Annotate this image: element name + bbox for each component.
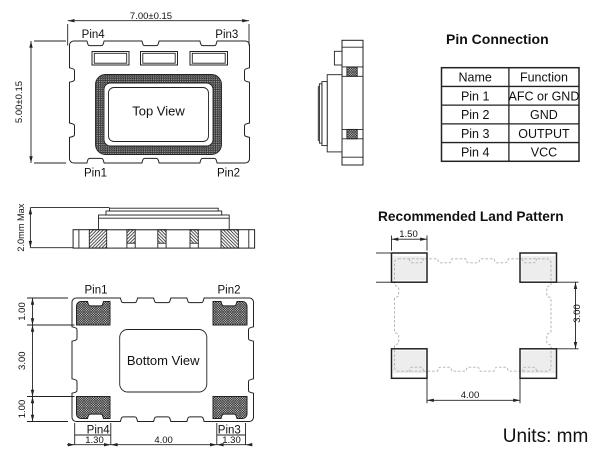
svg-text:Pin1: Pin1 [84, 168, 107, 180]
svg-text:3.00: 3.00 [17, 351, 28, 370]
svg-text:1.00: 1.00 [17, 400, 28, 419]
svg-text:2.0mm Max: 2.0mm Max [16, 203, 26, 251]
svg-text:3.00: 3.00 [572, 304, 583, 323]
svg-text:Pin Connection: Pin Connection [446, 31, 549, 47]
svg-text:Pin2: Pin2 [217, 168, 240, 180]
svg-text:1.50: 1.50 [399, 229, 418, 240]
svg-text:1.30: 1.30 [85, 435, 104, 446]
svg-text:GND: GND [530, 108, 558, 122]
svg-text:1.30: 1.30 [222, 435, 241, 446]
svg-text:Recommended Land Pattern: Recommended Land Pattern [378, 209, 564, 224]
svg-text:Pin3: Pin3 [215, 29, 238, 41]
svg-text:Pin4: Pin4 [82, 29, 106, 41]
svg-text:AFC or GND: AFC or GND [509, 89, 580, 103]
svg-text:Name: Name [459, 71, 492, 85]
svg-text:5.00±0.15: 5.00±0.15 [14, 81, 25, 123]
svg-text:Pin2: Pin2 [217, 285, 240, 297]
svg-text:1.00: 1.00 [17, 302, 28, 321]
svg-text:Pin 3: Pin 3 [461, 127, 490, 141]
svg-text:Pin 4: Pin 4 [461, 146, 490, 160]
svg-text:Pin 2: Pin 2 [461, 108, 490, 122]
svg-text:Pin 1: Pin 1 [461, 89, 490, 103]
svg-text:7.00±0.15: 7.00±0.15 [130, 11, 172, 22]
svg-text:Bottom View: Bottom View [127, 353, 200, 368]
svg-text:OUTPUT: OUTPUT [518, 127, 570, 141]
svg-text:VCC: VCC [531, 146, 557, 160]
svg-text:Function: Function [520, 71, 568, 85]
svg-text:Top View: Top View [132, 104, 185, 119]
svg-text:4.00: 4.00 [154, 435, 173, 446]
svg-text:Units: mm: Units: mm [503, 426, 589, 447]
svg-text:4.00: 4.00 [461, 390, 480, 401]
svg-text:Pin1: Pin1 [84, 285, 107, 297]
